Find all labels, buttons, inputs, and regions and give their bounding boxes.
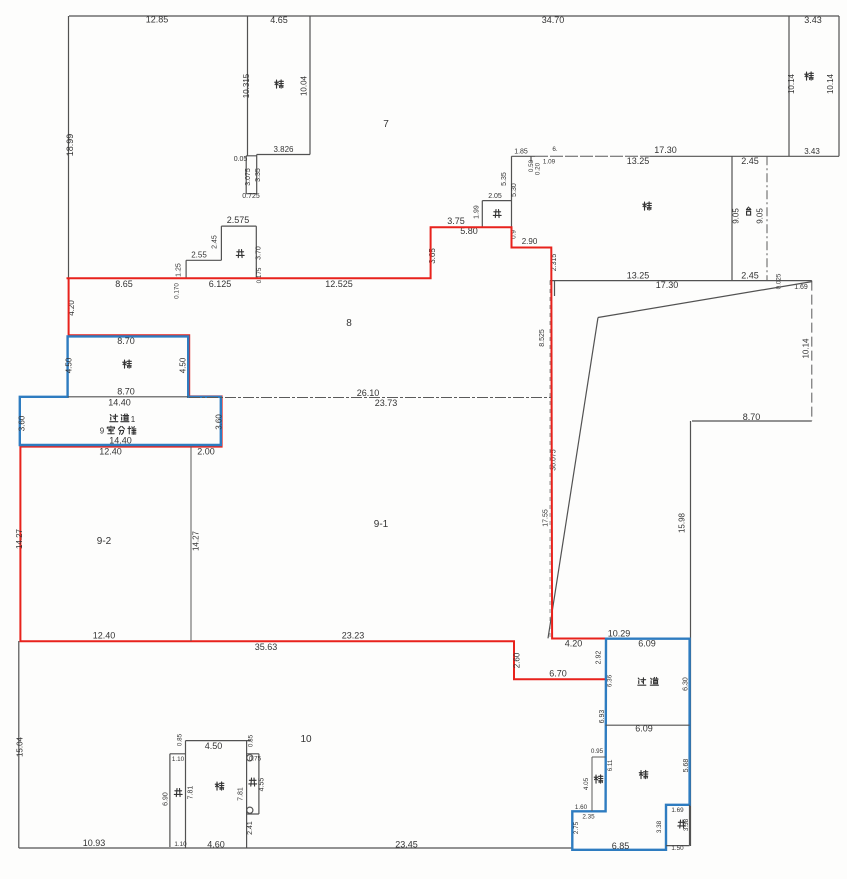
- svg-text:3.70: 3.70: [256, 246, 263, 260]
- svg-text:3.38: 3.38: [683, 818, 690, 831]
- svg-text:10.14: 10.14: [802, 338, 811, 359]
- svg-text:14.27: 14.27: [192, 530, 201, 551]
- svg-text:6.70: 6.70: [549, 669, 567, 679]
- svg-text:1.99: 1.99: [474, 205, 481, 219]
- svg-text:2.60: 2.60: [513, 652, 522, 668]
- svg-text:3.43: 3.43: [804, 147, 820, 156]
- svg-text:14.27: 14.27: [15, 528, 24, 549]
- svg-text:0.95: 0.95: [591, 748, 604, 755]
- svg-text:6.11: 6.11: [607, 759, 614, 771]
- svg-text:15.04: 15.04: [16, 736, 25, 757]
- svg-text:7.81: 7.81: [188, 786, 195, 800]
- svg-text:0.05: 0.05: [234, 156, 248, 163]
- svg-text:12.40: 12.40: [93, 631, 116, 641]
- svg-text:3.075: 3.075: [245, 168, 252, 186]
- svg-text:6.: 6.: [552, 146, 558, 153]
- svg-text:12.40: 12.40: [99, 447, 122, 457]
- svg-text:8.525: 8.525: [539, 329, 546, 347]
- svg-text:10.04: 10.04: [300, 75, 309, 96]
- svg-text:10.14: 10.14: [826, 73, 835, 94]
- svg-text:0.170: 0.170: [174, 283, 181, 299]
- svg-text:1.10: 1.10: [174, 841, 187, 848]
- svg-text:1: 1: [131, 415, 136, 424]
- svg-text:0.85: 0.85: [248, 734, 255, 747]
- svg-text:34.70: 34.70: [542, 15, 565, 25]
- svg-text:2.41: 2.41: [247, 821, 254, 835]
- svg-text:0.725: 0.725: [242, 193, 260, 200]
- svg-text:9.05: 9.05: [732, 208, 741, 224]
- svg-text:3.38: 3.38: [656, 820, 663, 833]
- svg-text:6.90: 6.90: [163, 792, 170, 806]
- svg-text:17.55: 17.55: [543, 509, 550, 527]
- svg-text:1.69: 1.69: [671, 807, 684, 814]
- svg-text:2.92: 2.92: [596, 651, 603, 665]
- svg-text:15.98: 15.98: [678, 512, 687, 533]
- svg-text:10.14: 10.14: [787, 73, 796, 94]
- svg-text:18.99: 18.99: [65, 134, 75, 157]
- svg-text:13.25: 13.25: [627, 271, 650, 281]
- svg-text:4.50: 4.50: [205, 741, 223, 751]
- svg-text:1.10: 1.10: [172, 756, 185, 763]
- svg-text:9-1: 9-1: [374, 519, 389, 530]
- svg-text:3.826: 3.826: [273, 145, 294, 154]
- svg-text:8: 8: [346, 318, 352, 329]
- svg-text:14.40: 14.40: [109, 436, 132, 446]
- svg-text:1.85: 1.85: [514, 149, 528, 156]
- svg-text:4.50: 4.50: [179, 357, 188, 373]
- svg-text:6.36: 6.36: [607, 674, 614, 687]
- svg-text:3.75: 3.75: [447, 216, 465, 226]
- svg-text:8.65: 8.65: [115, 279, 133, 289]
- svg-text:0.175: 0.175: [256, 267, 263, 283]
- svg-text:35.63: 35.63: [255, 642, 278, 652]
- svg-text:0.75: 0.75: [249, 756, 262, 763]
- svg-text:5.35: 5.35: [501, 172, 508, 186]
- svg-text:9: 9: [100, 427, 105, 436]
- svg-text:12.85: 12.85: [146, 15, 169, 25]
- svg-text:2.35: 2.35: [582, 814, 595, 821]
- svg-text:4.20: 4.20: [565, 639, 583, 649]
- svg-text:23.23: 23.23: [342, 631, 365, 641]
- svg-text:9.05: 9.05: [756, 208, 765, 224]
- svg-text:4.55: 4.55: [259, 778, 266, 792]
- svg-text:10.29: 10.29: [608, 629, 631, 639]
- svg-text:7: 7: [383, 119, 389, 130]
- svg-text:2.45: 2.45: [212, 235, 219, 249]
- svg-text:10.315: 10.315: [242, 73, 251, 98]
- svg-text:8.70: 8.70: [117, 336, 135, 346]
- svg-text:26.10: 26.10: [357, 388, 380, 398]
- svg-text:23.73: 23.73: [375, 398, 398, 408]
- svg-text:4.65: 4.65: [270, 15, 288, 25]
- svg-text:0.85: 0.85: [177, 733, 184, 746]
- svg-text:2.45: 2.45: [741, 271, 759, 281]
- svg-text:14.40: 14.40: [108, 398, 131, 408]
- svg-text:2.55: 2.55: [191, 251, 207, 260]
- svg-text:9-2: 9-2: [97, 536, 112, 547]
- svg-text:3.35: 3.35: [255, 168, 262, 182]
- svg-text:6.93: 6.93: [599, 710, 606, 724]
- svg-text:8.70: 8.70: [117, 387, 135, 397]
- svg-text:4.50: 4.50: [65, 357, 74, 373]
- svg-text:1.25: 1.25: [176, 263, 183, 277]
- svg-text:1.69: 1.69: [794, 284, 808, 291]
- svg-text:0.20: 0.20: [535, 162, 542, 175]
- svg-text:2.45: 2.45: [741, 156, 759, 166]
- svg-text:17.30: 17.30: [656, 280, 679, 290]
- svg-text:6.125: 6.125: [209, 279, 232, 289]
- svg-text:8.70: 8.70: [743, 412, 761, 422]
- svg-text:2.90: 2.90: [522, 237, 538, 246]
- svg-text:3.43: 3.43: [804, 15, 822, 25]
- svg-text:1.60: 1.60: [575, 804, 588, 811]
- svg-text:6.85: 6.85: [612, 841, 630, 851]
- svg-text:4.60: 4.60: [207, 840, 225, 850]
- svg-text:10.93: 10.93: [83, 838, 106, 848]
- svg-text:3.65: 3.65: [428, 248, 437, 264]
- svg-text:10: 10: [300, 734, 312, 745]
- svg-text:5.68: 5.68: [683, 759, 690, 773]
- svg-text:4.05: 4.05: [583, 777, 590, 790]
- svg-text:2.05: 2.05: [488, 193, 502, 200]
- svg-text:2.75: 2.75: [573, 821, 580, 834]
- svg-text:3.60: 3.60: [215, 414, 224, 430]
- svg-text:3.60: 3.60: [18, 415, 27, 431]
- svg-text:6.30: 6.30: [683, 677, 690, 691]
- svg-text:1.50: 1.50: [671, 845, 684, 852]
- svg-text:6.09: 6.09: [635, 724, 653, 734]
- svg-text:6.09: 6.09: [638, 639, 656, 649]
- svg-text:5.30: 5.30: [511, 183, 518, 197]
- svg-text:12.525: 12.525: [325, 279, 353, 289]
- svg-text:13.25: 13.25: [627, 156, 650, 166]
- svg-text:1.09: 1.09: [543, 159, 556, 166]
- svg-text:7.81: 7.81: [238, 787, 245, 801]
- svg-text:17.30: 17.30: [654, 145, 677, 155]
- svg-text:23.45: 23.45: [395, 840, 418, 850]
- svg-text:2.00: 2.00: [197, 447, 215, 457]
- svg-text:2.575: 2.575: [227, 215, 250, 225]
